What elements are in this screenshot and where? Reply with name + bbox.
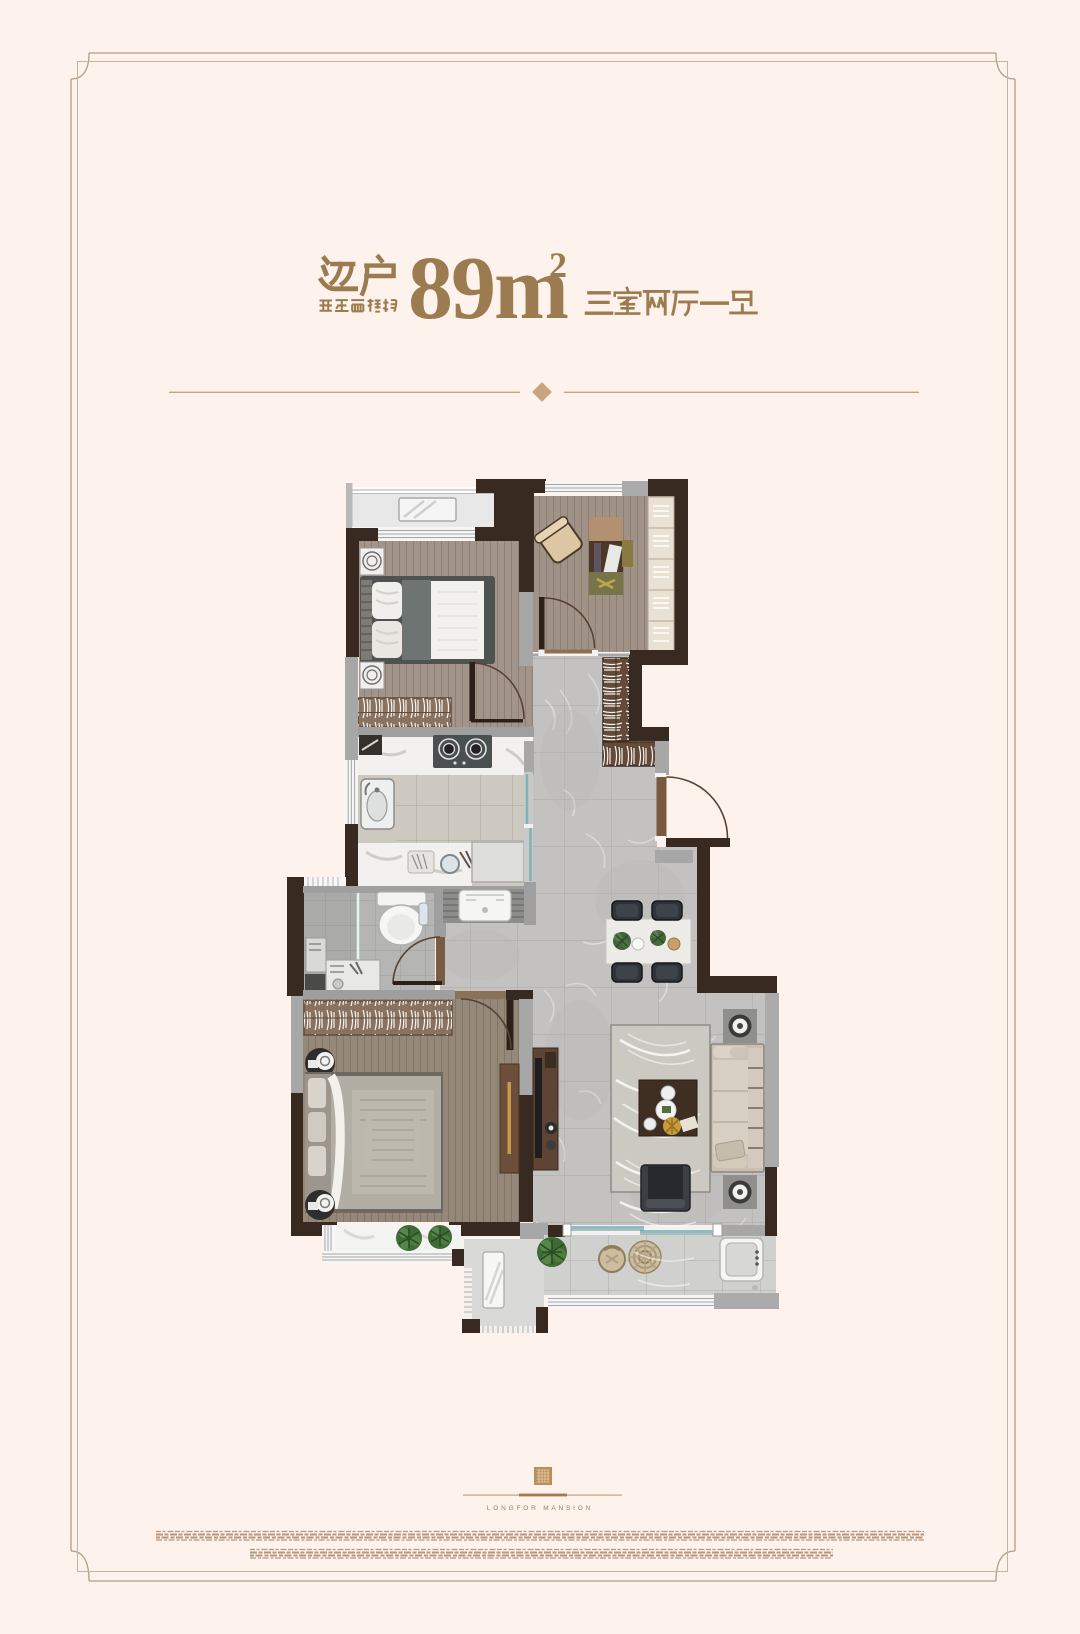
- svg-text:2: 2: [549, 245, 567, 285]
- svg-text:LONGFOR MANSION: LONGFOR MANSION: [487, 1505, 593, 1512]
- svg-text:89m: 89m: [408, 239, 568, 338]
